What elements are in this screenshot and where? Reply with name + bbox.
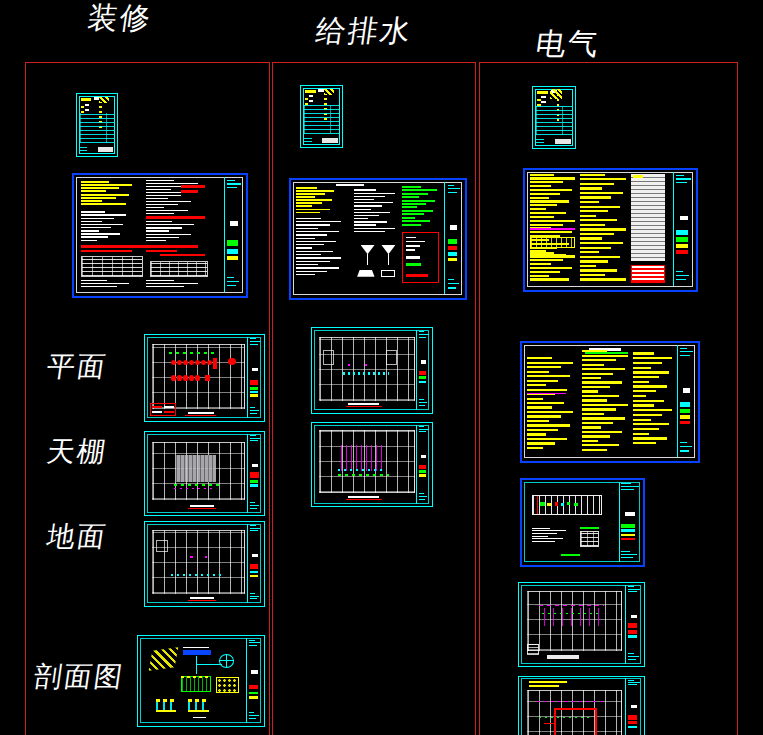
- decor-shape: [227, 285, 236, 286]
- decor-shape: [680, 351, 693, 352]
- decor-shape: [354, 218, 369, 219]
- decor-shape: [250, 593, 255, 594]
- decor-shape: [250, 440, 258, 441]
- decor-shape: [388, 254, 389, 265]
- decor-shape: [527, 411, 573, 413]
- decor-shape: [527, 366, 561, 368]
- decor-shape: [633, 423, 669, 425]
- decor-shape: [539, 605, 604, 607]
- decor-shape: [146, 204, 177, 205]
- decor-shape: [530, 228, 574, 230]
- decor-shape: [250, 530, 258, 531]
- decor-shape: [680, 402, 690, 407]
- decor-shape: [164, 406, 174, 408]
- decor-shape: [542, 613, 602, 614]
- decor-shape: [85, 103, 89, 110]
- decor-shape: [631, 265, 665, 283]
- decor-shape: [354, 215, 379, 216]
- decor-shape: [619, 482, 620, 563]
- decor-shape: [621, 529, 635, 532]
- decor-shape: [536, 106, 571, 135]
- decor-shape: [81, 256, 143, 277]
- decor-shape: [419, 376, 427, 379]
- decor-shape: [227, 256, 238, 260]
- decor-shape: [247, 337, 248, 419]
- decor-shape: [628, 623, 638, 628]
- decor-shape: [338, 474, 388, 476]
- decor-shape: [402, 210, 432, 212]
- decor-shape: [544, 608, 599, 626]
- decor-shape: [296, 264, 318, 265]
- decor-shape: [582, 373, 613, 375]
- sheet-decoration-drawing-list-thumbnail[interactable]: [76, 93, 118, 157]
- decor-shape: [680, 409, 690, 413]
- decor-shape: [146, 234, 191, 235]
- decor-shape: [628, 586, 635, 587]
- decor-shape: [197, 664, 222, 665]
- decor-shape: [561, 503, 565, 506]
- decor-shape: [252, 368, 258, 371]
- decor-shape: [680, 348, 687, 349]
- sheet-electrical-plan1-thumbnail[interactable]: [518, 582, 645, 667]
- decor-shape: [156, 702, 176, 710]
- decor-shape: [250, 341, 261, 342]
- decor-shape: [580, 527, 599, 530]
- decor-shape: [544, 723, 554, 724]
- decor-shape: [322, 138, 338, 142]
- decor-shape: [582, 404, 628, 406]
- decor-shape: [530, 200, 569, 202]
- decor-shape: [402, 186, 421, 188]
- decor-shape: [676, 237, 687, 242]
- decor-shape: [81, 181, 109, 183]
- decor-shape: [530, 177, 574, 179]
- decor-shape: [346, 406, 382, 407]
- decor-shape: [81, 250, 133, 252]
- decor-shape: [176, 455, 216, 482]
- decor-shape: [250, 407, 255, 408]
- decor-shape: [250, 505, 260, 506]
- decor-shape: [190, 505, 214, 507]
- decor-shape: [146, 240, 166, 241]
- decor-shape: [227, 281, 239, 282]
- decor-shape: [580, 206, 620, 208]
- decor-shape: [346, 499, 382, 500]
- decor-shape: [628, 635, 638, 637]
- sheet-electrical-drawing-list-thumbnail[interactable]: [532, 86, 576, 149]
- decor-shape: [188, 710, 208, 712]
- decor-shape: [555, 139, 571, 143]
- decor-shape: [188, 600, 217, 601]
- decor-shape: [582, 449, 607, 451]
- decor-shape: [628, 589, 640, 590]
- decor-shape: [146, 207, 164, 208]
- decor-shape: [419, 334, 429, 335]
- decor-shape: [537, 91, 548, 95]
- decor-shape: [81, 214, 126, 215]
- decor-shape: [305, 90, 316, 94]
- decor-shape: [250, 564, 258, 569]
- decor-shape: [527, 420, 549, 422]
- decor-shape: [633, 395, 647, 397]
- decor-shape: [524, 482, 640, 563]
- decor-shape: [582, 368, 625, 370]
- decor-shape: [448, 287, 456, 288]
- decor-shape: [580, 201, 599, 203]
- decor-shape: [527, 384, 546, 386]
- decor-shape: [537, 701, 607, 702]
- decor-shape: [169, 352, 214, 354]
- decor-shape: [250, 596, 260, 597]
- decor-shape: [419, 426, 424, 427]
- decor-shape: [633, 381, 649, 383]
- decor-shape: [402, 203, 425, 205]
- column-label-electrical: 电气: [534, 29, 602, 59]
- decor-shape: [448, 192, 457, 193]
- decor-shape: [527, 389, 567, 391]
- decor-shape: [341, 445, 387, 472]
- decor-shape: [419, 371, 427, 375]
- decor-shape: [530, 174, 554, 176]
- decor-shape: [633, 362, 662, 364]
- decor-shape: [146, 280, 174, 281]
- decor-shape: [354, 193, 396, 194]
- decor-shape: [419, 399, 424, 400]
- sheet-decoration-notes-thumbnail[interactable]: [72, 173, 248, 298]
- decor-shape: [540, 502, 545, 506]
- decor-shape: [296, 187, 317, 189]
- decor-shape: [250, 528, 261, 529]
- decor-shape: [227, 180, 235, 181]
- decor-shape: [304, 105, 338, 134]
- decor-shape: [249, 645, 257, 646]
- decor-shape: [296, 212, 319, 214]
- decor-shape: [296, 202, 322, 204]
- decor-shape: [419, 465, 427, 469]
- decor-shape: [582, 395, 619, 397]
- decor-shape: [195, 360, 200, 365]
- decor-shape: [250, 410, 260, 411]
- decor-shape: [174, 488, 217, 489]
- decor-shape: [580, 228, 626, 230]
- decor-shape: [188, 508, 217, 509]
- decor-shape: [621, 489, 634, 490]
- decor-shape: [527, 371, 549, 373]
- decor-shape: [530, 197, 548, 199]
- sheet-plumbing-drawing-list-thumbnail[interactable]: [300, 85, 343, 148]
- decor-shape: [402, 224, 421, 226]
- decor-shape: [296, 271, 327, 272]
- decor-shape: [621, 551, 629, 552]
- decor-shape: [537, 496, 538, 514]
- decor-shape: [354, 221, 388, 222]
- decor-shape: [190, 597, 214, 599]
- decor-shape: [444, 182, 445, 294]
- decor-shape: [532, 538, 564, 539]
- decor-shape: [582, 355, 628, 357]
- sheet-decoration-plan-thumbnail[interactable]: [144, 334, 265, 422]
- decor-shape: [348, 364, 350, 366]
- decor-shape: [146, 230, 169, 231]
- decor-shape: [146, 245, 198, 247]
- decor-shape: [419, 496, 428, 497]
- decor-shape: [628, 591, 637, 592]
- decor-shape: [633, 404, 654, 406]
- decor-shape: [171, 574, 223, 576]
- decor-shape: [580, 251, 599, 253]
- decor-shape: [80, 113, 114, 143]
- sheet-plumbing-notes-thumbnail[interactable]: [289, 178, 467, 300]
- decor-shape: [527, 433, 546, 435]
- decor-shape: [354, 202, 393, 203]
- decor-shape: [676, 250, 687, 254]
- column-label-decoration: 装修: [86, 3, 154, 33]
- decor-shape: [527, 398, 543, 400]
- decor-shape: [677, 345, 678, 457]
- decor-shape: [419, 431, 426, 432]
- decor-shape: [421, 360, 426, 363]
- decor-shape: [580, 192, 623, 194]
- sheet-decoration-section-details-thumbnail[interactable]: [137, 635, 265, 727]
- decor-shape: [354, 212, 390, 213]
- decor-shape: [530, 275, 548, 277]
- decor-shape: [336, 184, 364, 187]
- decor-shape: [580, 260, 608, 262]
- decor-shape: [448, 185, 455, 186]
- decor-shape: [680, 421, 690, 425]
- decor-shape: [296, 218, 321, 219]
- decor-shape: [250, 413, 257, 414]
- decor-shape: [207, 360, 212, 365]
- decor-shape: [530, 189, 572, 191]
- decor-shape: [532, 533, 557, 534]
- decor-shape: [81, 200, 102, 202]
- decor-shape: [547, 655, 580, 658]
- decor-shape: [296, 209, 329, 211]
- decor-shape: [146, 237, 179, 238]
- decor-shape: [448, 283, 459, 284]
- decor-shape: [250, 575, 258, 578]
- decor-shape: [249, 642, 260, 643]
- decor-shape: [250, 525, 256, 526]
- decor-shape: [580, 219, 617, 221]
- decor-shape: [633, 409, 672, 411]
- decor-shape: [296, 247, 312, 248]
- decor-shape: [227, 249, 238, 254]
- decor-shape: [152, 411, 162, 413]
- decor-shape: [582, 381, 622, 383]
- decor-shape: [676, 175, 684, 176]
- decor-shape: [416, 425, 417, 504]
- decor-shape: [527, 375, 570, 377]
- decor-shape: [146, 210, 188, 211]
- decor-shape: [680, 355, 689, 356]
- decor-shape: [527, 362, 573, 364]
- decor-shape: [676, 244, 687, 248]
- decor-shape: [250, 480, 258, 482]
- decor-shape: [580, 274, 605, 276]
- decor-shape: [249, 692, 258, 695]
- decor-shape: [227, 183, 241, 184]
- decor-shape: [81, 233, 120, 234]
- decor-shape: [580, 265, 596, 267]
- decor-shape: [309, 95, 313, 102]
- decor-shape: [448, 279, 454, 280]
- decor-shape: [621, 486, 638, 487]
- decor-shape: [354, 205, 382, 206]
- decor-shape: [354, 231, 385, 232]
- decor-shape: [628, 630, 638, 633]
- decor-shape: [628, 721, 638, 724]
- cad-canvas: 装修 给排水 电气 平面 天棚 地面 剖面图: [0, 0, 763, 735]
- decor-shape: [250, 394, 258, 397]
- decor-shape: [580, 256, 620, 258]
- decor-shape: [539, 717, 589, 718]
- decor-shape: [296, 261, 329, 262]
- decor-shape: [296, 234, 327, 235]
- decor-shape: [580, 242, 623, 244]
- sheet-plumbing-plan2-thumbnail[interactable]: [311, 422, 433, 507]
- decor-shape: [201, 360, 206, 365]
- decor-shape: [205, 375, 211, 382]
- decor-shape: [81, 224, 123, 225]
- decor-shape: [530, 224, 563, 226]
- decor-shape: [296, 267, 338, 268]
- sheet-electrical-notes1-thumbnail[interactable]: [523, 168, 698, 292]
- decor-shape: [527, 415, 561, 417]
- decor-shape: [354, 209, 371, 210]
- decor-shape: [582, 386, 610, 388]
- decor-shape: [450, 225, 457, 230]
- decor-shape: [530, 255, 574, 257]
- decor-shape: [676, 279, 686, 280]
- decor-shape: [580, 187, 602, 189]
- sheet-electrical-system-table-thumbnail[interactable]: [520, 478, 645, 567]
- decor-shape: [81, 190, 106, 192]
- decor-shape: [530, 237, 574, 248]
- decor-shape: [554, 708, 597, 735]
- decor-shape: [580, 210, 608, 212]
- decor-shape: [580, 247, 611, 249]
- decor-shape: [419, 405, 425, 406]
- decor-shape: [249, 718, 256, 719]
- decor-shape: [216, 677, 239, 692]
- decor-shape: [673, 172, 674, 286]
- decor-shape: [81, 283, 129, 284]
- decor-shape: [676, 230, 687, 235]
- decor-shape: [205, 556, 207, 558]
- decor-shape: [354, 228, 396, 229]
- decor-shape: [224, 177, 225, 292]
- decor-shape: [631, 615, 638, 618]
- decor-shape: [580, 178, 626, 180]
- decor-shape: [633, 437, 667, 439]
- decor-shape: [181, 676, 211, 679]
- decor-shape: [343, 372, 389, 375]
- decor-shape: [633, 376, 659, 378]
- sheet-decoration-floor-plan-thumbnail[interactable]: [144, 521, 265, 607]
- decor-shape: [296, 251, 332, 252]
- decor-shape: [582, 413, 604, 415]
- decor-shape: [621, 554, 636, 555]
- decor-shape: [354, 189, 377, 190]
- decor-shape: [680, 216, 688, 221]
- sheet-electrical-plan2-thumbnail[interactable]: [518, 676, 645, 735]
- decor-shape: [252, 554, 258, 557]
- sheet-plumbing-plan1-thumbnail[interactable]: [311, 327, 433, 414]
- decor-shape: [402, 213, 423, 215]
- decor-shape: [530, 263, 551, 265]
- decor-shape: [625, 585, 626, 664]
- decor-shape: [574, 503, 578, 506]
- decor-shape: [582, 359, 616, 361]
- decor-shape: [530, 193, 560, 195]
- decor-shape: [680, 446, 691, 447]
- decor-shape: [146, 189, 171, 190]
- decor-shape: [81, 194, 129, 196]
- decor-shape: [146, 201, 191, 202]
- row-label-ceiling: 天棚: [45, 438, 109, 466]
- decor-shape: [676, 275, 689, 276]
- decor-shape: [527, 424, 570, 426]
- decor-shape: [81, 286, 117, 287]
- decor-shape: [177, 375, 182, 380]
- decor-shape: [250, 391, 258, 394]
- decor-shape: [98, 147, 113, 151]
- decor-shape: [81, 184, 133, 186]
- decor-shape: [296, 193, 324, 195]
- decor-shape: [250, 472, 260, 478]
- decor-shape: [196, 656, 197, 674]
- decor-shape: [530, 185, 551, 187]
- decor-shape: [250, 508, 257, 509]
- sheet-decoration-ceiling-plan-thumbnail[interactable]: [144, 431, 265, 516]
- decor-shape: [633, 419, 652, 421]
- decor-shape: [227, 277, 234, 278]
- decor-shape: [419, 474, 427, 476]
- decor-shape: [250, 338, 256, 339]
- decor-shape: [633, 367, 652, 369]
- decor-shape: [448, 239, 458, 244]
- decor-shape: [146, 250, 177, 252]
- decor-shape: [81, 103, 84, 113]
- decor-shape: [633, 385, 667, 387]
- decor-shape: [633, 371, 669, 373]
- decor-shape: [419, 402, 428, 403]
- decor-shape: [406, 237, 416, 238]
- row-label-plan: 平面: [45, 353, 109, 381]
- decor-shape: [527, 380, 558, 382]
- decor-shape: [628, 653, 634, 654]
- decor-shape: [81, 197, 116, 199]
- decor-shape: [448, 188, 461, 189]
- decor-shape: [190, 556, 192, 558]
- decor-shape: [250, 344, 258, 345]
- decor-shape: [246, 638, 247, 724]
- decor-shape: [406, 249, 415, 250]
- decor-shape: [582, 417, 625, 419]
- decor-shape: [250, 435, 256, 436]
- decor-shape: [249, 712, 254, 713]
- decor-shape: [580, 183, 614, 185]
- decor-shape: [580, 174, 605, 176]
- decor-shape: [621, 538, 635, 541]
- decor-shape: [402, 206, 416, 208]
- decor-shape: [250, 387, 258, 390]
- decor-shape: [419, 337, 426, 338]
- sheet-electrical-notes2-thumbnail[interactable]: [520, 341, 700, 463]
- decor-shape: [633, 414, 662, 416]
